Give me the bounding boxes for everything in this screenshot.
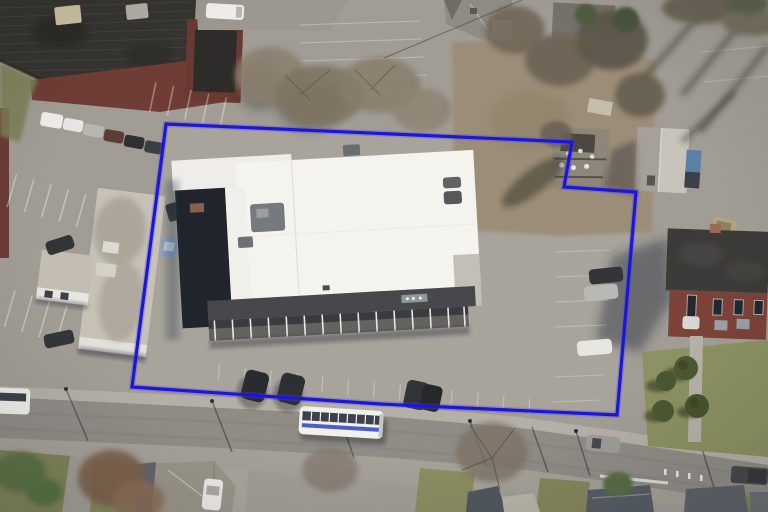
aerial-photo-canvas[interactable] bbox=[0, 0, 768, 512]
aerial-photo bbox=[0, 0, 768, 512]
film-grain bbox=[0, 0, 768, 512]
